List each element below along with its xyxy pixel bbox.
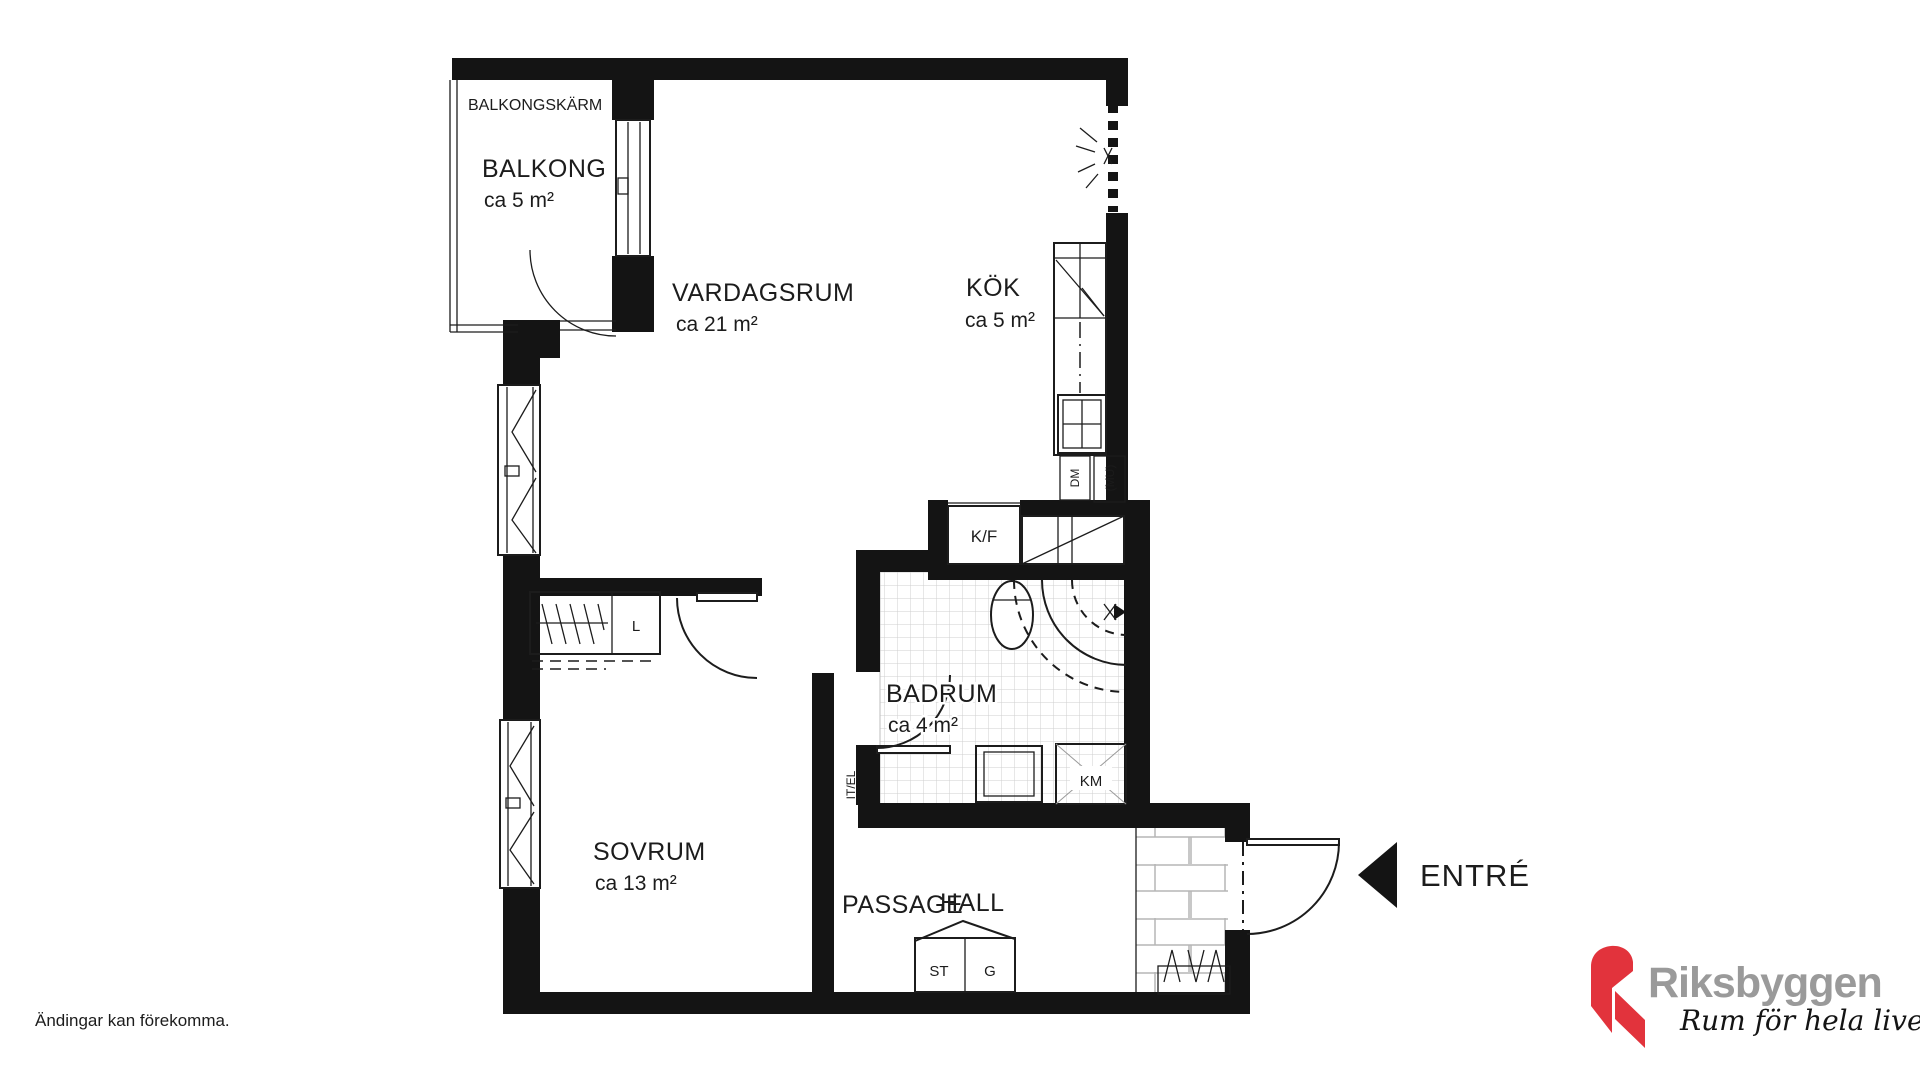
- disclaimer-text: Ändingar kan förekomma.: [35, 1011, 230, 1030]
- kitchen-counter: [1054, 243, 1106, 455]
- room-area-balcony: ca 5 m²: [484, 189, 554, 212]
- room-label-bedroom: SOVRUM: [593, 838, 706, 866]
- room-label-hall: HALL: [940, 889, 1005, 917]
- room-label-kitchen: KÖK: [966, 274, 1020, 302]
- riksbyggen-logo: Riksbyggen Rum för hela livet: [1591, 946, 1920, 1048]
- bedroom-window: [500, 720, 540, 888]
- washing-machine-label: KM: [1080, 773, 1103, 790]
- it-el-label: IT/EL: [844, 770, 858, 799]
- room-label-balcony: BALKONG: [482, 155, 606, 183]
- brand-name: Riksbyggen: [1648, 959, 1882, 1007]
- room-area-bedroom: ca 13 m²: [595, 872, 677, 895]
- bedroom-door: [677, 593, 757, 678]
- linen-closet-label: L: [632, 618, 640, 635]
- microwave-label: (MU): [1103, 465, 1117, 492]
- bedroom-wardrobe: L: [530, 592, 660, 669]
- balcony-screen-label: BALKONGSKÄRM: [468, 96, 602, 114]
- toilet: [991, 581, 1033, 649]
- entry-door: [1243, 839, 1339, 934]
- fridge-freezer-label: K/F: [971, 527, 997, 546]
- entry-label: ENTRÉ: [1420, 858, 1530, 893]
- room-label-bathroom: BADRUM: [886, 680, 997, 708]
- room-area-living: ca 21 m²: [676, 313, 758, 336]
- entry-vestibule-tiles: [1136, 828, 1228, 994]
- room-area-bathroom: ca 4 m²: [888, 714, 958, 737]
- tall-cabinet: [1022, 516, 1124, 564]
- brand-tagline: Rum för hela livet: [1679, 1004, 1920, 1037]
- kitchen-window-dashed: [1076, 104, 1113, 212]
- living-room-window: [498, 385, 540, 555]
- dishwasher-label: DM: [1068, 469, 1082, 488]
- closet-g-label: G: [984, 963, 996, 980]
- entry-arrow-icon: [1358, 842, 1397, 908]
- room-area-kitchen: ca 5 m²: [965, 309, 1035, 332]
- room-label-living: VARDAGSRUM: [672, 279, 854, 307]
- hall-closets: ST G: [915, 921, 1015, 992]
- riksbyggen-logo-mark-leg: [1615, 991, 1645, 1048]
- closet-st-label: ST: [929, 963, 948, 980]
- stove: [1058, 395, 1106, 453]
- dishwasher: DM: [1060, 456, 1090, 500]
- walls: [452, 58, 1250, 1014]
- floor-plan: DM (MU): [0, 0, 1920, 1080]
